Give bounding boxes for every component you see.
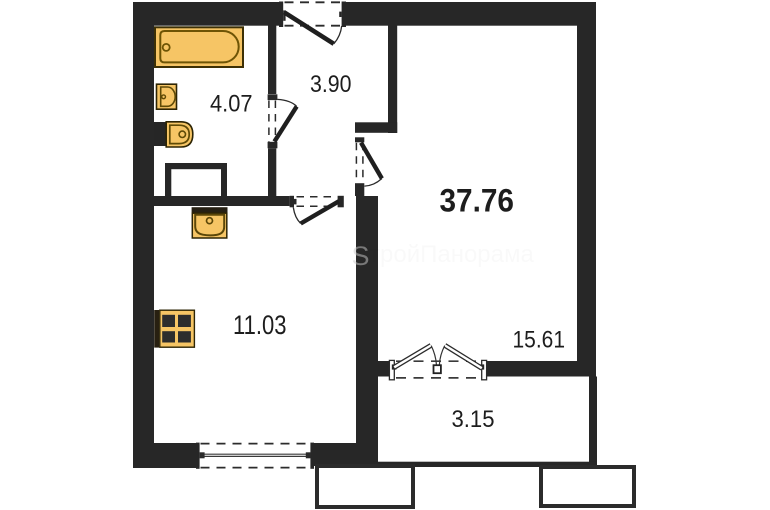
svg-text:3.90: 3.90 (310, 71, 352, 98)
svg-text:11.03: 11.03 (233, 310, 287, 340)
svg-text:37.76: 37.76 (440, 182, 515, 218)
svg-text:3.15: 3.15 (452, 406, 495, 433)
svg-text:4.07: 4.07 (210, 91, 253, 118)
svg-text:15.61: 15.61 (513, 326, 566, 353)
svg-text:тройПанорама: тройПанорама (369, 241, 534, 268)
